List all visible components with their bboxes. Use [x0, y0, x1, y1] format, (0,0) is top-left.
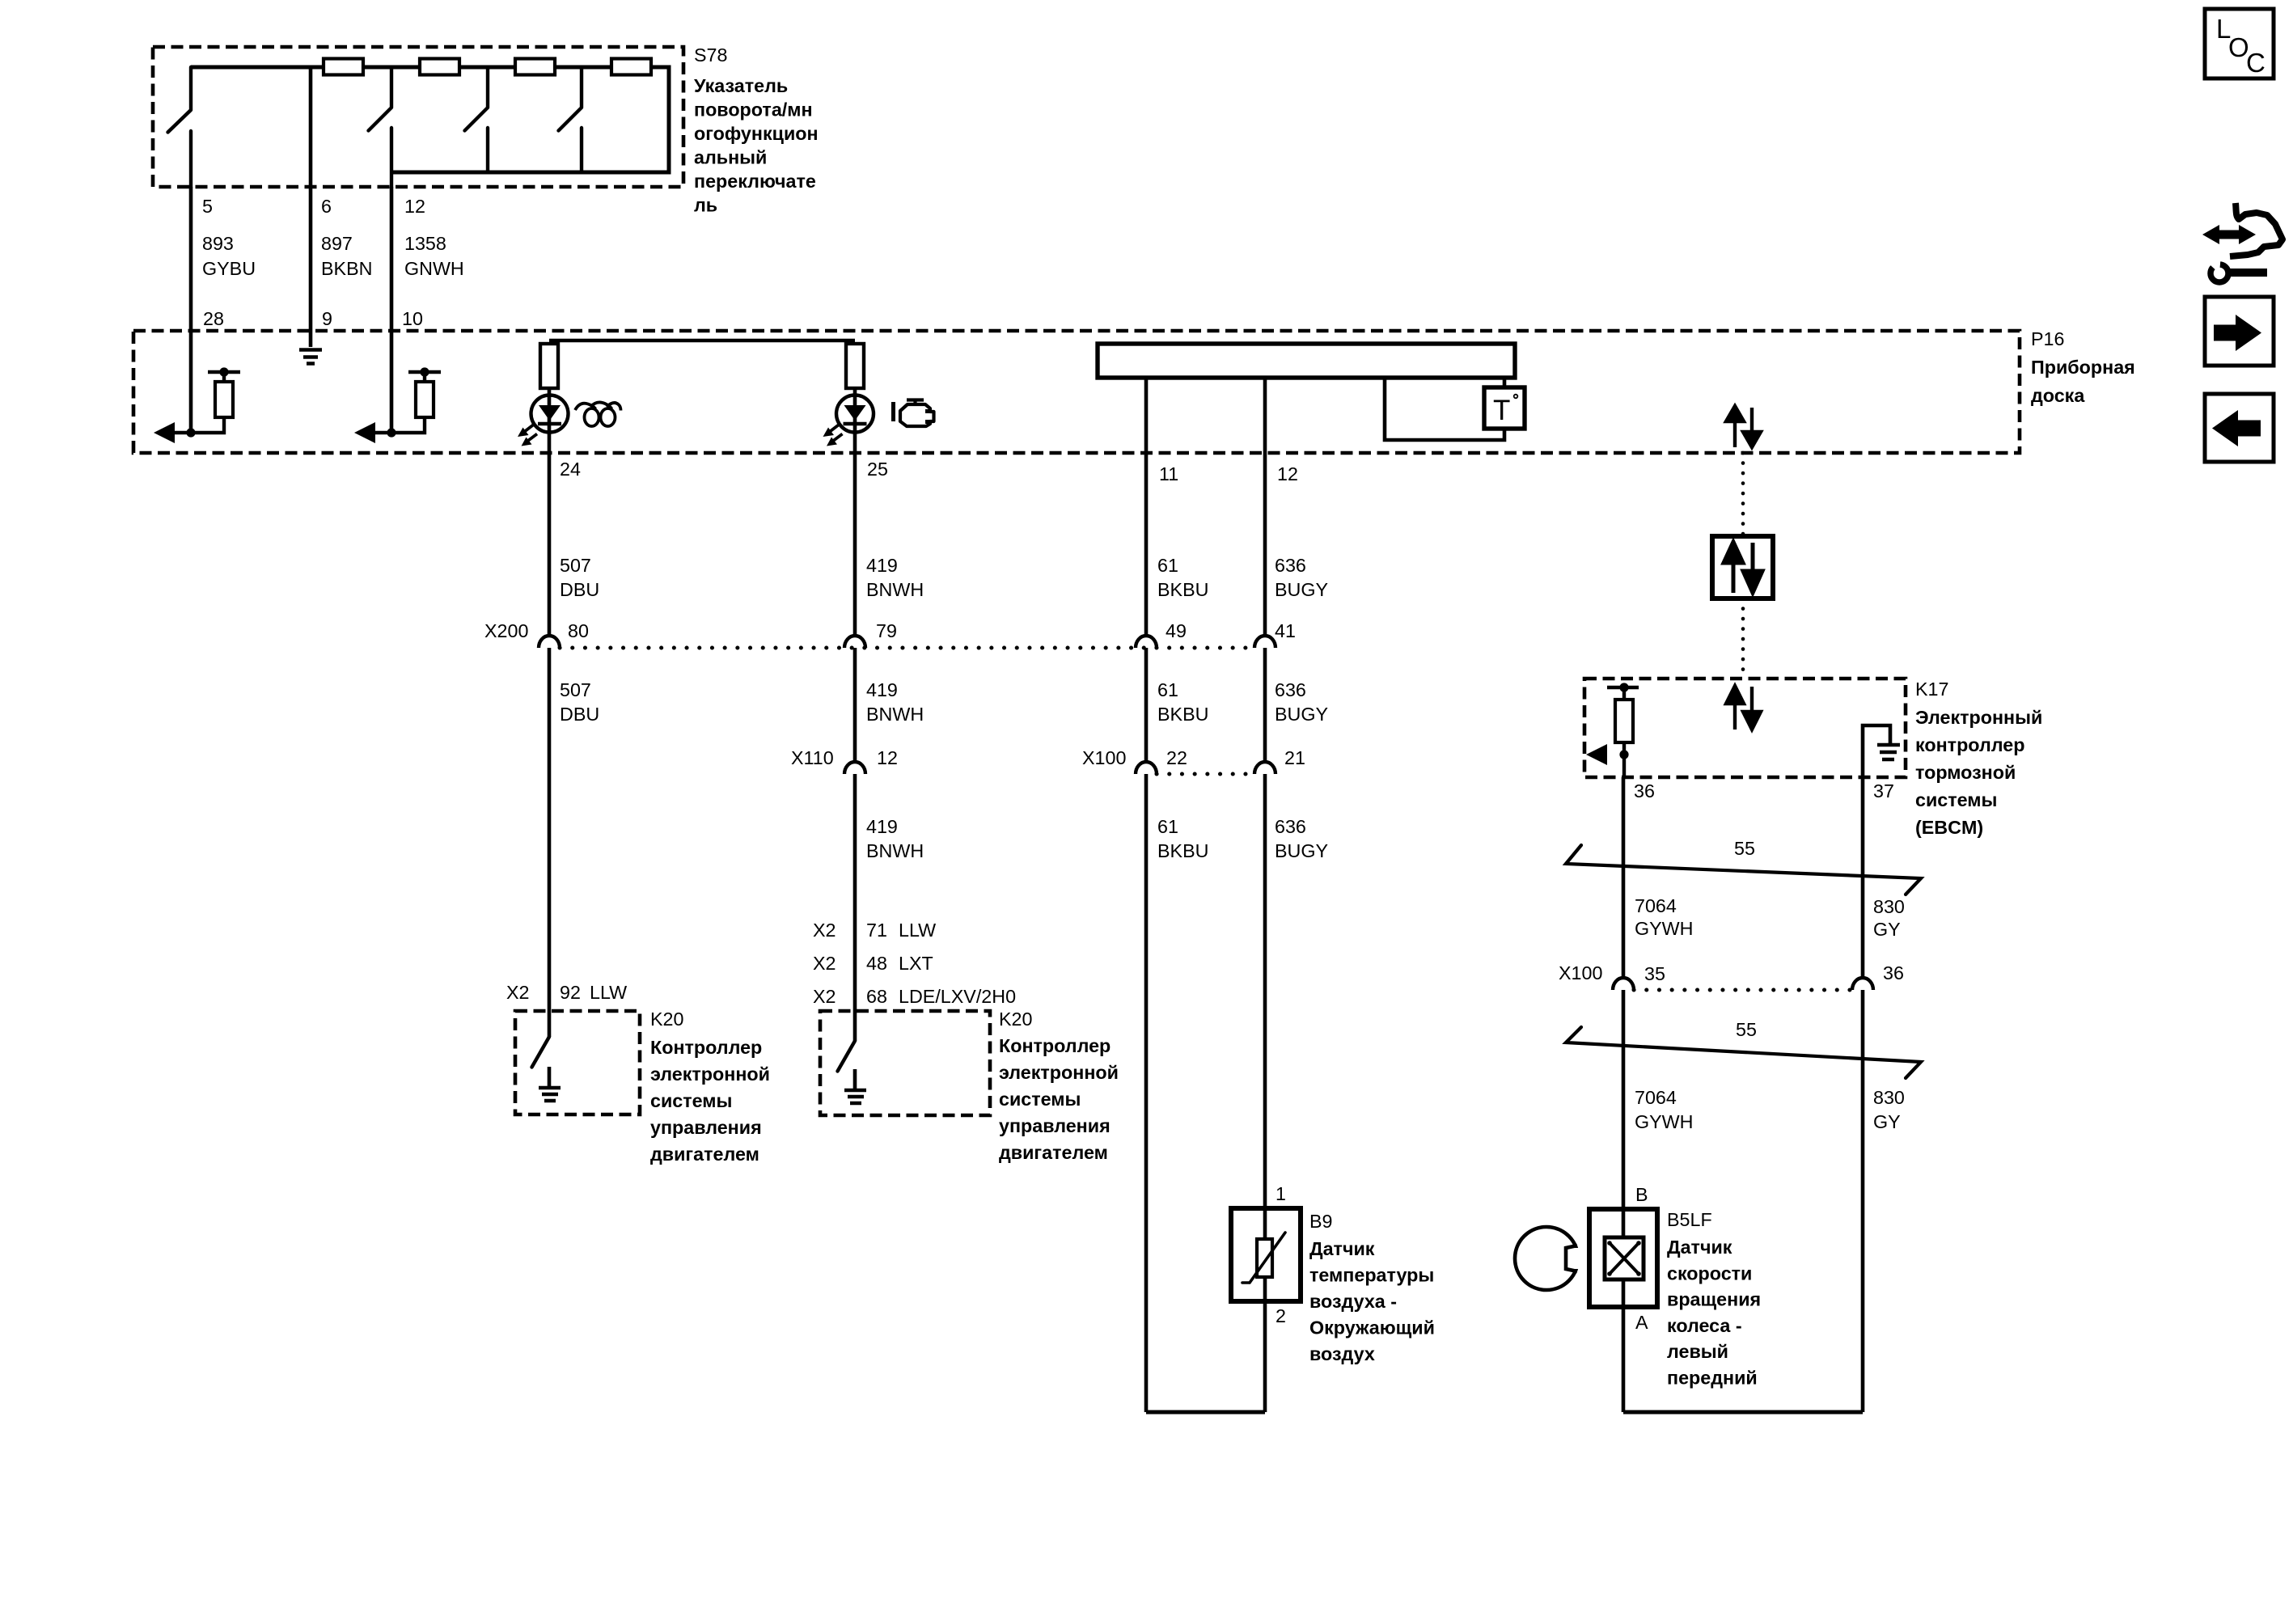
svg-text:419: 419: [866, 816, 898, 837]
svg-text:Электронный: Электронный: [1915, 707, 2042, 728]
svg-text:28: 28: [203, 308, 224, 329]
svg-text:управления: управления: [650, 1117, 762, 1138]
svg-text:GYWH: GYWH: [1635, 918, 1693, 939]
svg-text:DBU: DBU: [560, 704, 599, 725]
svg-text:GY: GY: [1873, 1111, 1901, 1132]
svg-text:419: 419: [866, 679, 898, 700]
svg-text:11: 11: [1159, 463, 1178, 484]
svg-text:24: 24: [560, 459, 581, 480]
svg-text:1: 1: [1276, 1183, 1286, 1204]
svg-text:BKBU: BKBU: [1157, 840, 1208, 861]
svg-text:5: 5: [202, 196, 213, 217]
svg-text:9: 9: [322, 308, 332, 329]
svg-text:доска: доска: [2031, 385, 2085, 406]
svg-text:воздуха -: воздуха -: [1309, 1291, 1397, 1312]
svg-text:636: 636: [1275, 679, 1306, 700]
svg-text:897: 897: [321, 233, 353, 254]
svg-text:35: 35: [1644, 963, 1665, 984]
svg-text:X2: X2: [813, 920, 836, 941]
svg-text:X100: X100: [1082, 747, 1126, 768]
svg-text:48: 48: [866, 953, 887, 974]
svg-text:LXT: LXT: [899, 953, 933, 974]
svg-text:BNWH: BNWH: [866, 579, 924, 600]
svg-text:BNWH: BNWH: [866, 704, 924, 725]
svg-text:Контроллер: Контроллер: [650, 1037, 762, 1058]
svg-text:25: 25: [867, 459, 888, 480]
svg-text:температуры: температуры: [1309, 1265, 1434, 1286]
svg-text:Приборная: Приборная: [2031, 357, 2135, 378]
svg-text:22: 22: [1166, 747, 1187, 768]
svg-text:(EBCM): (EBCM): [1915, 817, 1983, 838]
svg-text:K20: K20: [999, 1009, 1032, 1030]
svg-text:61: 61: [1157, 679, 1178, 700]
svg-text:636: 636: [1275, 555, 1306, 576]
svg-text:LLW: LLW: [590, 982, 627, 1003]
svg-text:X2: X2: [813, 953, 836, 974]
svg-text:830: 830: [1873, 896, 1905, 917]
svg-text:1358: 1358: [404, 233, 446, 254]
svg-text:S78: S78: [694, 44, 727, 66]
svg-text:системы: системы: [1915, 789, 1997, 810]
svg-text:переключате: переключате: [694, 171, 816, 192]
svg-text:передний: передний: [1667, 1368, 1758, 1389]
svg-text:GYBU: GYBU: [202, 258, 256, 279]
svg-text:BKBN: BKBN: [321, 258, 372, 279]
svg-text:92: 92: [560, 982, 581, 1003]
svg-text:X2: X2: [813, 986, 836, 1007]
svg-text:K20: K20: [650, 1009, 683, 1030]
svg-text:6: 6: [321, 196, 332, 217]
svg-text:DBU: DBU: [560, 579, 599, 600]
svg-text:контроллер: контроллер: [1915, 734, 2024, 755]
svg-text:огофункцион: огофункцион: [694, 123, 819, 144]
svg-text:воздух: воздух: [1309, 1343, 1375, 1364]
svg-text:21: 21: [1284, 747, 1305, 768]
svg-text:893: 893: [202, 233, 234, 254]
svg-text:Датчик: Датчик: [1667, 1237, 1732, 1258]
svg-text:X110: X110: [791, 747, 834, 768]
svg-text:55: 55: [1736, 1019, 1757, 1040]
svg-text:BKBU: BKBU: [1157, 704, 1208, 725]
svg-text:ль: ль: [694, 195, 717, 216]
svg-text:C: C: [2246, 48, 2266, 78]
svg-text:68: 68: [866, 986, 887, 1007]
svg-text:507: 507: [560, 679, 591, 700]
svg-text:тормозной: тормозной: [1915, 762, 2016, 783]
svg-text:LDE/LXV/2H0: LDE/LXV/2H0: [899, 986, 1016, 1007]
svg-text:управления: управления: [999, 1115, 1111, 1136]
svg-text:BUGY: BUGY: [1275, 840, 1328, 861]
svg-text:BUGY: BUGY: [1275, 704, 1328, 725]
svg-text:GYWH: GYWH: [1635, 1111, 1693, 1132]
svg-text:P16: P16: [2031, 328, 2064, 349]
svg-text:Указатель: Указатель: [694, 75, 788, 96]
svg-text:A: A: [1635, 1312, 1648, 1333]
svg-text:79: 79: [876, 620, 897, 641]
svg-text:X100: X100: [1559, 962, 1602, 983]
svg-text:B: B: [1635, 1184, 1648, 1205]
svg-text:системы: системы: [650, 1090, 732, 1111]
svg-text:10: 10: [402, 308, 423, 329]
svg-text:альный: альный: [694, 147, 767, 168]
svg-text:скорости: скорости: [1667, 1262, 1752, 1284]
svg-text:K17: K17: [1915, 679, 1948, 700]
svg-text:электронной: электронной: [999, 1062, 1119, 1083]
svg-text:двигателем: двигателем: [999, 1142, 1108, 1163]
svg-text:X200: X200: [484, 620, 528, 641]
svg-text:двигателем: двигателем: [650, 1144, 759, 1165]
svg-text:12: 12: [1277, 463, 1298, 484]
svg-text:Окружающий: Окружающий: [1309, 1317, 1435, 1339]
svg-text:колеса -: колеса -: [1667, 1315, 1742, 1336]
svg-text:12: 12: [404, 196, 425, 217]
svg-text:B5LF: B5LF: [1667, 1209, 1712, 1230]
svg-text:61: 61: [1157, 816, 1178, 837]
svg-text:поворота/мн: поворота/мн: [694, 99, 813, 121]
svg-text:12: 12: [877, 747, 898, 768]
svg-text:электронной: электронной: [650, 1064, 770, 1085]
svg-text:левый: левый: [1667, 1341, 1728, 1362]
svg-text:41: 41: [1275, 620, 1296, 641]
svg-text:Контроллер: Контроллер: [999, 1035, 1111, 1056]
svg-text:BKBU: BKBU: [1157, 579, 1208, 600]
svg-text:2: 2: [1276, 1305, 1286, 1326]
svg-text:507: 507: [560, 555, 591, 576]
svg-text:80: 80: [568, 620, 589, 641]
svg-text:BNWH: BNWH: [866, 840, 924, 861]
svg-text:37: 37: [1873, 780, 1894, 801]
svg-text:вращения: вращения: [1667, 1289, 1761, 1310]
svg-text:BUGY: BUGY: [1275, 579, 1328, 600]
svg-text:419: 419: [866, 555, 898, 576]
svg-text:830: 830: [1873, 1087, 1905, 1108]
svg-text:B9: B9: [1309, 1211, 1333, 1232]
svg-text:системы: системы: [999, 1089, 1081, 1110]
svg-text:36: 36: [1634, 780, 1655, 801]
svg-text:7064: 7064: [1635, 895, 1677, 916]
svg-text:LLW: LLW: [899, 920, 936, 941]
svg-text:GNWH: GNWH: [404, 258, 464, 279]
svg-text:61: 61: [1157, 555, 1178, 576]
svg-text:7064: 7064: [1635, 1087, 1677, 1108]
svg-text:Датчик: Датчик: [1309, 1238, 1375, 1259]
svg-text:36: 36: [1883, 962, 1904, 983]
svg-text:X2: X2: [506, 982, 530, 1003]
svg-text:55: 55: [1734, 838, 1755, 859]
svg-text:49: 49: [1166, 620, 1187, 641]
svg-text:T: T: [1493, 395, 1510, 426]
svg-text:636: 636: [1275, 816, 1306, 837]
svg-text:GY: GY: [1873, 919, 1901, 940]
svg-text:71: 71: [866, 920, 887, 941]
